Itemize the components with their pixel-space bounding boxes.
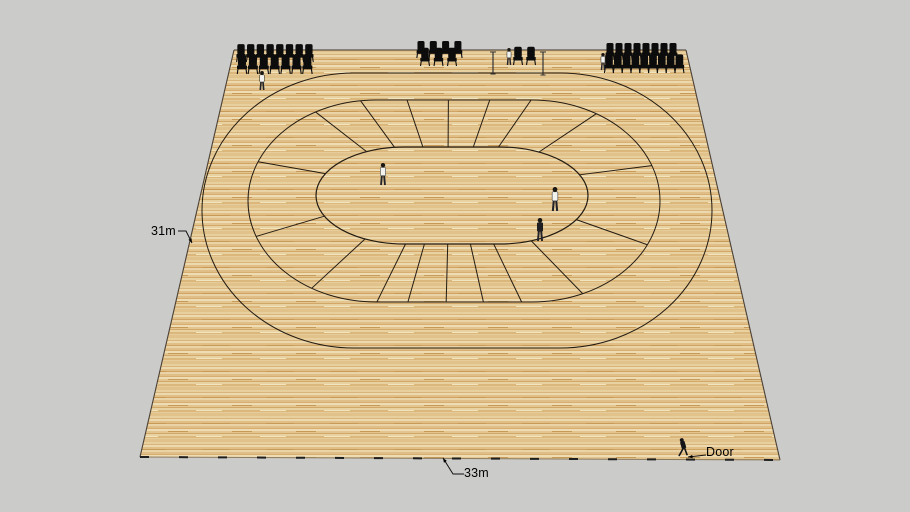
dimension-label-length: 33m [464,466,489,480]
scene-canvas [0,0,910,512]
model-viewport[interactable]: 31m 33m Door [0,0,910,512]
dimension-label-width: 31m [151,224,176,238]
leader-33m [443,458,464,474]
wood-floor [140,50,780,460]
door-label: Door [706,445,734,459]
